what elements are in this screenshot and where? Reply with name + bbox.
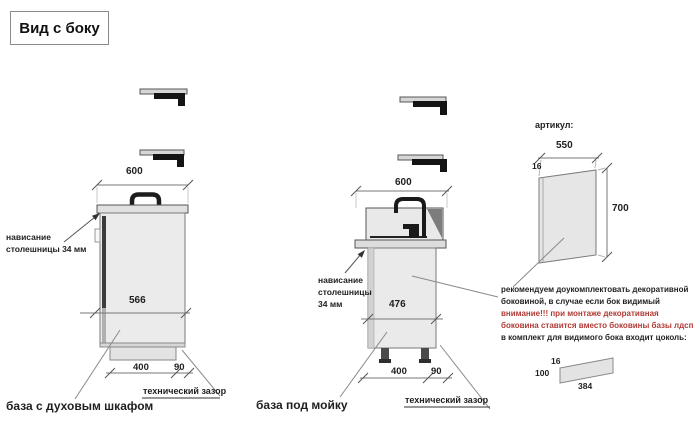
cab2-plinth-dimension: 400	[391, 367, 407, 377]
strip-length-dimension: 384	[578, 382, 592, 391]
cab1-plinth-dimension: 400	[133, 363, 149, 373]
side-panel-drawing	[513, 153, 612, 287]
cab1-width-dimension: 600	[126, 167, 143, 177]
cab1-technical-gap-label: технический зазор	[143, 387, 226, 396]
note-line: боковиной, в случае если бок видимый	[501, 298, 660, 306]
cab1-gap-dimension: 90	[174, 363, 185, 373]
view-title-box: Вид с боку	[10, 11, 109, 45]
cab1-overhang-label: нависание	[6, 233, 51, 242]
cab2-depth-dimension: 476	[389, 300, 406, 310]
cab2-name-label: база под мойку	[256, 399, 348, 411]
cab2-overhang-label: 34 мм	[318, 300, 342, 309]
panel-height-dimension: 700	[612, 204, 629, 214]
cab1-name-label: база с духовым шкафом	[6, 400, 153, 412]
cab2-overhang-label: столешницы	[318, 288, 372, 297]
sink-base-drawing	[340, 186, 498, 409]
cab2-gap-dimension: 90	[431, 367, 442, 377]
name-leader-line	[340, 332, 387, 397]
adjustable-leg-drawing	[379, 348, 431, 363]
note-line: в комплект для видимого бока входит цоко…	[501, 334, 687, 342]
oven-handle-drawing	[132, 195, 159, 207]
cab2-width-dimension: 600	[395, 178, 412, 188]
side-view-drawing-page: Вид с боку 600 566 400 90 нависание стол…	[0, 0, 700, 428]
cab1-depth-dimension: 566	[129, 296, 146, 306]
cab1-overhang-label: столешницы 34 мм	[6, 245, 86, 254]
mounting-bracket-icon	[140, 150, 184, 167]
drawing-canvas	[0, 0, 700, 428]
mounting-bracket-icon	[398, 155, 447, 172]
cab2-technical-gap-label: технический зазор	[405, 396, 488, 405]
strip-height-dimension: 100	[535, 369, 549, 378]
mounting-bracket-icon	[140, 89, 187, 106]
page-title: Вид с боку	[19, 20, 100, 37]
mounting-bracket-icon	[400, 97, 447, 115]
panel-thickness-dimension: 16	[532, 162, 541, 171]
note-line: рекомендуем доукомплектовать декоративно…	[501, 286, 688, 294]
plinth-strip-drawing	[560, 358, 613, 383]
warning-note-line: внимание!!! при монтаже декоративная	[501, 310, 659, 318]
strip-thickness-dimension: 16	[551, 357, 560, 366]
article-heading: артикул:	[535, 121, 573, 130]
warning-note-line: боковина ставится вместо боковины базы л…	[501, 322, 693, 330]
name-leader-line	[75, 330, 120, 399]
panel-width-dimension: 550	[556, 141, 573, 151]
cab2-overhang-label: нависание	[318, 276, 363, 285]
arrowhead	[92, 213, 100, 220]
